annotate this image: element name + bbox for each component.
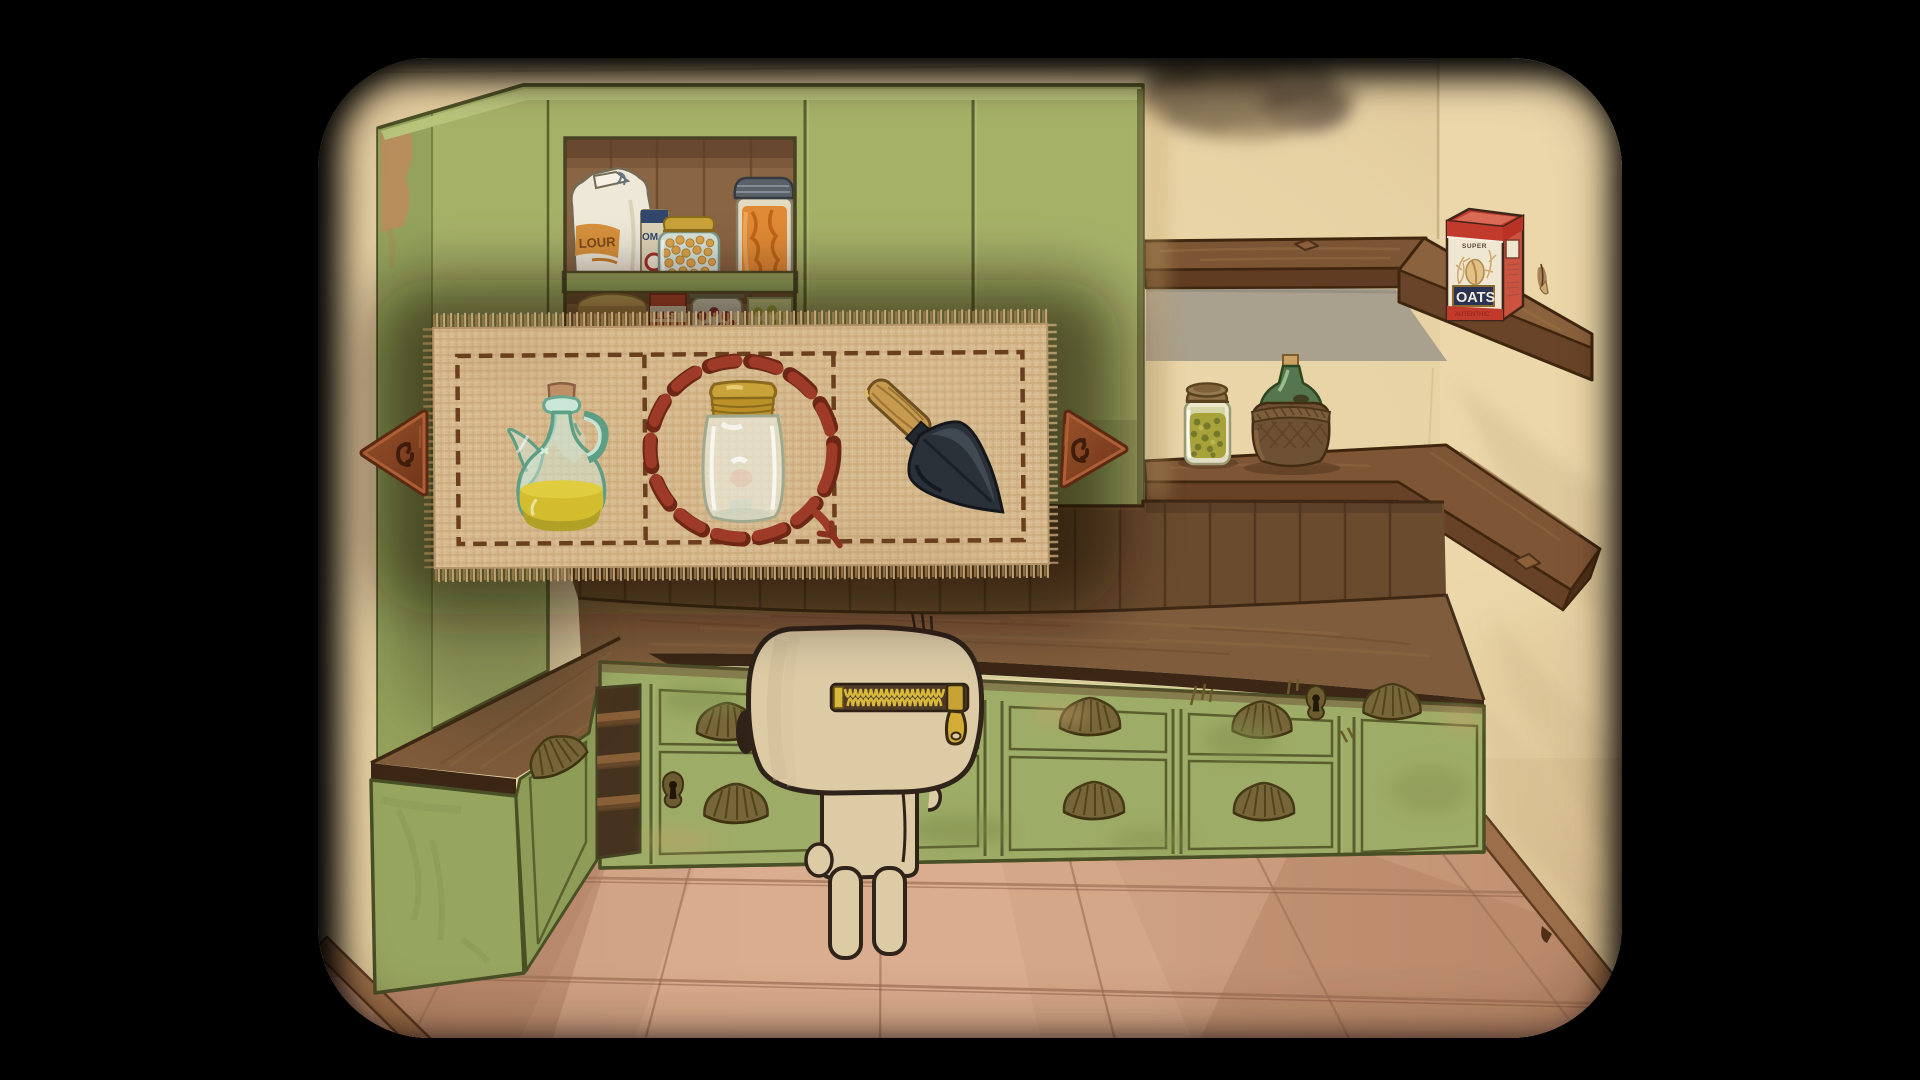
svg-text:OM: OM [642, 232, 658, 243]
svg-text:OATS: OATS [1456, 290, 1496, 306]
svg-text:LOUR: LOUR [578, 234, 616, 251]
svg-text:SUPER: SUPER [1462, 243, 1487, 250]
svg-text:AUTENTHIC: AUTENTHIC [1455, 312, 1490, 318]
